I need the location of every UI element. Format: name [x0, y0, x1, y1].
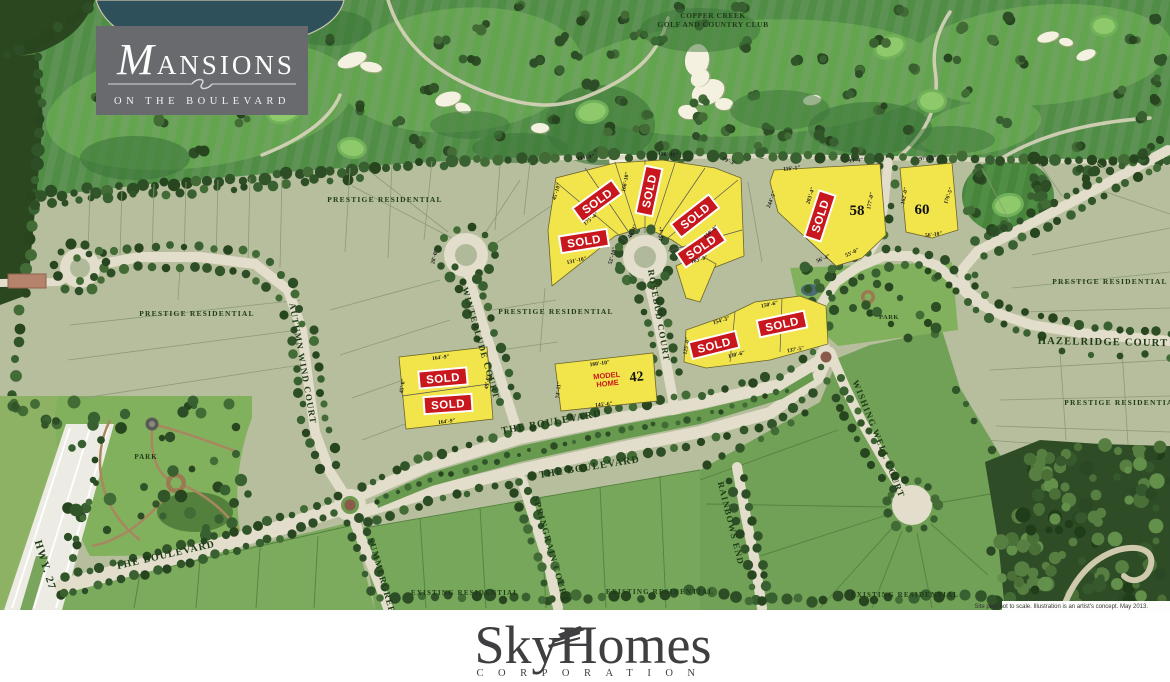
svg-text:PARK: PARK — [134, 453, 157, 461]
svg-text:PRESTIGE RESIDENTIAL: PRESTIGE RESIDENTIAL — [1052, 277, 1168, 286]
svg-text:PRESTIGE RESIDENTIAL: PRESTIGE RESIDENTIAL — [498, 307, 614, 316]
svg-text:EXISTING RESIDENTIAL: EXISTING RESIDENTIAL — [411, 589, 519, 597]
svg-text:PRESTIGE RESIDENTIAL: PRESTIGE RESIDENTIAL — [1064, 398, 1170, 407]
svg-text:PRESTIGE RESIDENTIAL: PRESTIGE RESIDENTIAL — [327, 195, 443, 204]
svg-text:SOLD: SOLD — [431, 398, 466, 412]
svg-text:HAZELRIDGE COURT: HAZELRIDGE COURT — [1038, 336, 1169, 349]
svg-text:PARK: PARK — [879, 314, 899, 321]
svg-text:CORPORATION: CORPORATION — [476, 668, 709, 677]
svg-text:GOLF AND COUNTRY CLUB: GOLF AND COUNTRY CLUB — [657, 20, 768, 29]
svg-text:EXISTING RESIDENTIAL: EXISTING RESIDENTIAL — [851, 591, 959, 599]
svg-text:97'-11″: 97'-11″ — [919, 155, 937, 162]
svg-text:58: 58 — [850, 203, 865, 219]
svg-text:99'-4″: 99'-4″ — [848, 157, 863, 164]
svg-text:PRESTIGE RESIDENTIAL: PRESTIGE RESIDENTIAL — [139, 309, 255, 318]
svg-text:42: 42 — [629, 369, 644, 385]
svg-text:ON THE BOULEVARD: ON THE BOULEVARD — [114, 96, 290, 107]
svg-text:60: 60 — [915, 202, 930, 218]
svg-text:SkyHomes: SkyHomes — [474, 615, 711, 675]
svg-text:EXISTING RESIDENTIAL: EXISTING RESIDENTIAL — [606, 588, 714, 596]
svg-text:COPPER CREEK: COPPER CREEK — [680, 11, 745, 20]
svg-text:Site plan not to scale. Illust: Site plan not to scale. Illustration is … — [974, 604, 1148, 610]
